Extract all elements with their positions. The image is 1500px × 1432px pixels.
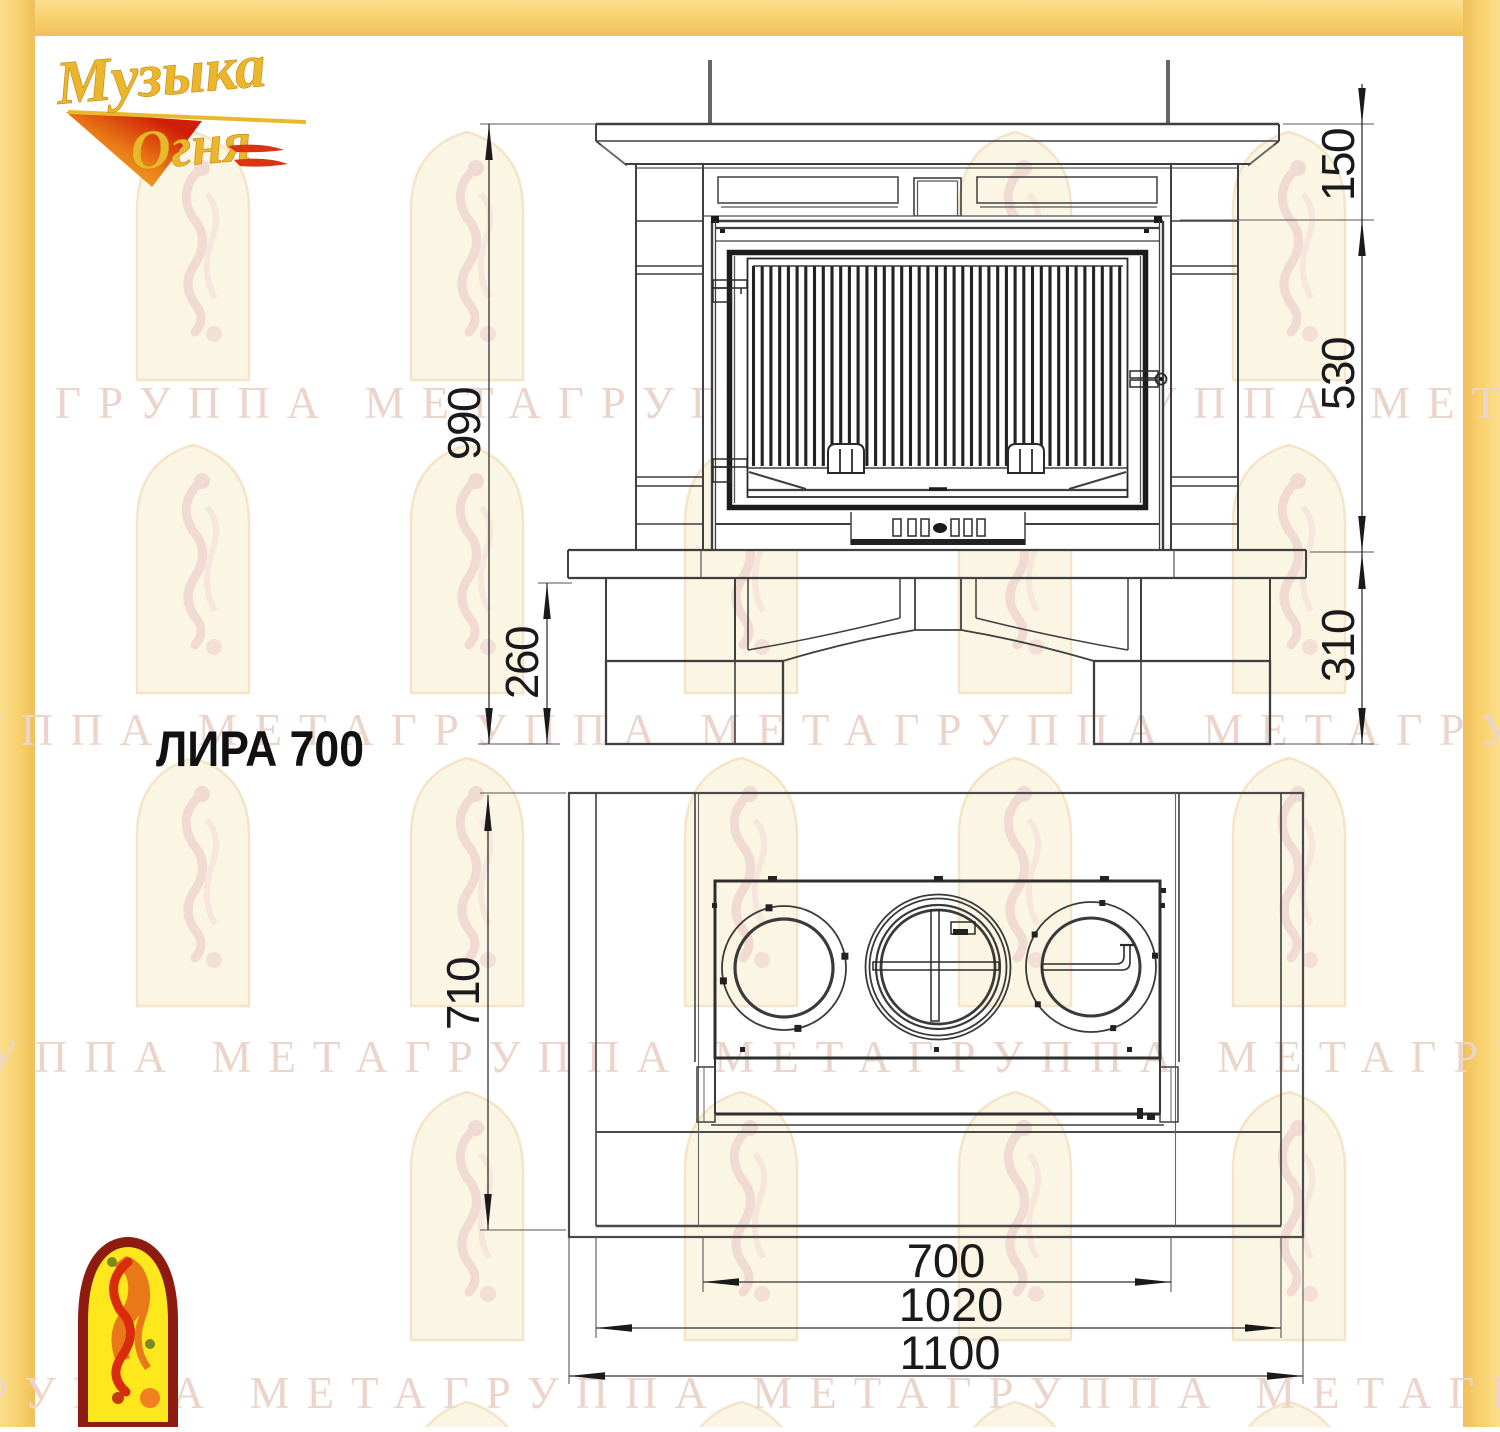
svg-text:150: 150 xyxy=(1312,129,1364,201)
svg-text:310: 310 xyxy=(1312,610,1364,682)
svg-text:990: 990 xyxy=(438,388,490,460)
svg-text:ЛИРА 700: ЛИРА 700 xyxy=(156,721,364,777)
svg-text:1100: 1100 xyxy=(899,1326,1000,1379)
svg-text:530: 530 xyxy=(1312,338,1364,410)
svg-text:260: 260 xyxy=(496,627,548,699)
svg-text:710: 710 xyxy=(437,958,489,1030)
svg-text:1020: 1020 xyxy=(899,1278,1004,1331)
